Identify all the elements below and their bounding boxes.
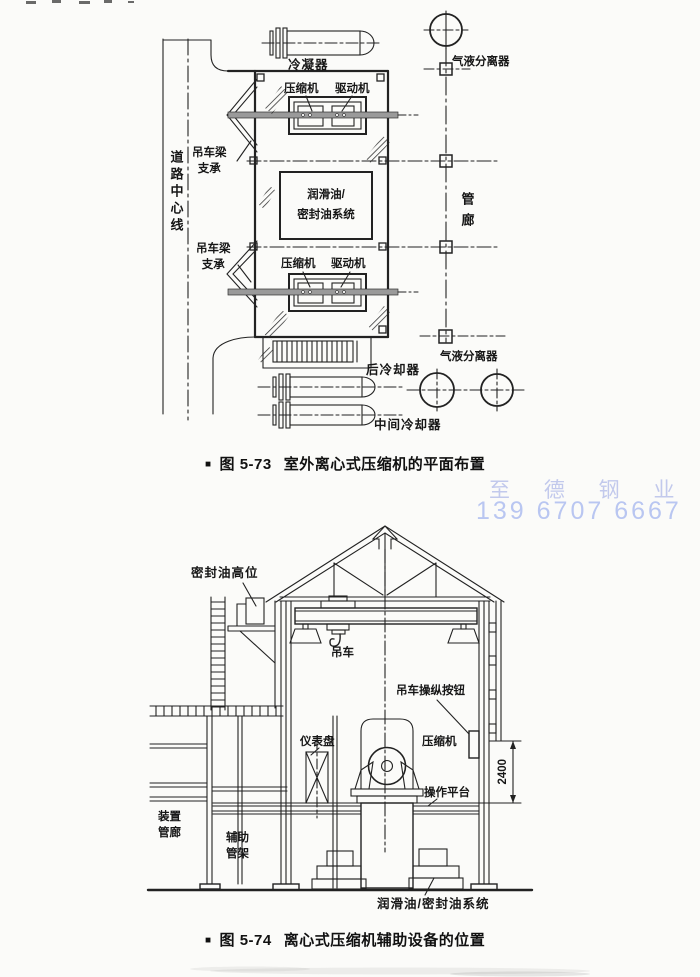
crane-beam-support-lower-label: 吊车梁 支承 [196, 242, 231, 273]
figure1-caption-number: 图 5-73 [220, 456, 272, 473]
figure1-caption-title: 室外离心式压缩机的平面布置 [284, 456, 486, 473]
driver-top-label: 驱动机 [335, 82, 370, 98]
caption-bullet: ■ [205, 935, 212, 946]
dimension-2400-label: 2400 [496, 759, 512, 785]
road-centerline-label: 道路中心线 [167, 150, 185, 235]
operating-platform-label: 操作平台 [424, 786, 470, 802]
gas-liquid-separator-bottom-label: 气液分离器 [440, 350, 498, 366]
instrument-panel-label: 仪表盘 [300, 735, 335, 751]
crane-beam-support-upper-label: 吊车梁 支承 [192, 146, 227, 177]
condenser-label: 冷凝器 [288, 57, 329, 74]
watermark-phone: 139 6707 6667 [476, 497, 682, 526]
compressor-elevation-label: 压缩机 [422, 735, 457, 751]
compressor-bottom-label: 压缩机 [281, 257, 316, 273]
driver-bottom-label: 驱动机 [331, 257, 366, 273]
pipe-gallery-label: 管廊 [458, 192, 476, 234]
lube-seal-oil-system-label: 润滑油/ 密封油系统 [281, 186, 371, 225]
figure2-caption: ■图 5-74离心式压缩机辅助设备的位置 [205, 929, 485, 950]
crane-control-button-label: 吊车操纵按钮 [396, 684, 465, 700]
figure2-caption-title: 离心式压缩机辅助设备的位置 [284, 932, 486, 949]
intercooler-label: 中间冷却器 [374, 417, 442, 434]
scanned-book-page: 道路中心线 冷凝器 压缩机 驱动机 吊车梁 支承 润滑油/ 密封油系统 吊车梁 … [0, 0, 700, 977]
aftercooler-label: 后冷却器 [366, 362, 420, 379]
figure2-caption-number: 图 5-74 [220, 932, 272, 949]
unit-pipe-gallery-label: 装置 管廊 [158, 810, 181, 841]
lube-seal-oil-system-elevation-label: 润滑油/密封油系统 [377, 896, 489, 913]
crane-label: 吊车 [331, 646, 354, 662]
compressor-top-label: 压缩机 [284, 82, 319, 98]
caption-bullet: ■ [205, 459, 212, 470]
figure2-elevation-drawing [0, 525, 700, 977]
auxiliary-pipe-rack-label: 辅助 管架 [226, 831, 249, 862]
gas-liquid-separator-top-label: 气液分离器 [452, 55, 510, 71]
figure1-caption: ■图 5-73室外离心式压缩机的平面布置 [205, 453, 485, 474]
seal-oil-high-tank-label: 密封油高位 [191, 565, 259, 582]
